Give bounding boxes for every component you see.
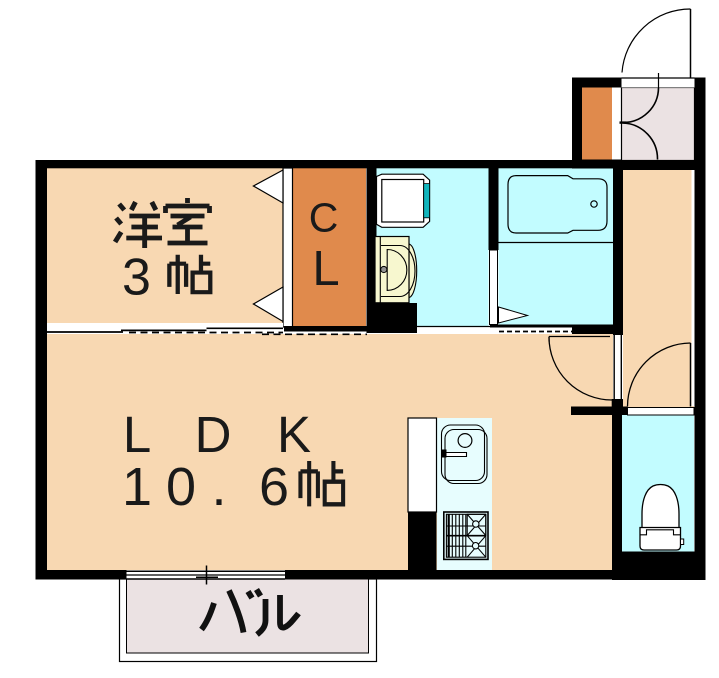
svg-text:K: K [277,406,311,463]
svg-text:6: 6 [259,457,289,517]
svg-text:3: 3 [122,249,151,307]
svg-text:C: C [309,195,339,241]
svg-text:1: 1 [122,457,152,517]
svg-text:D: D [195,406,232,463]
svg-text:L: L [312,242,339,296]
svg-text:.: . [211,457,226,517]
svg-text:0: 0 [166,457,196,517]
svg-text:L: L [123,406,151,463]
